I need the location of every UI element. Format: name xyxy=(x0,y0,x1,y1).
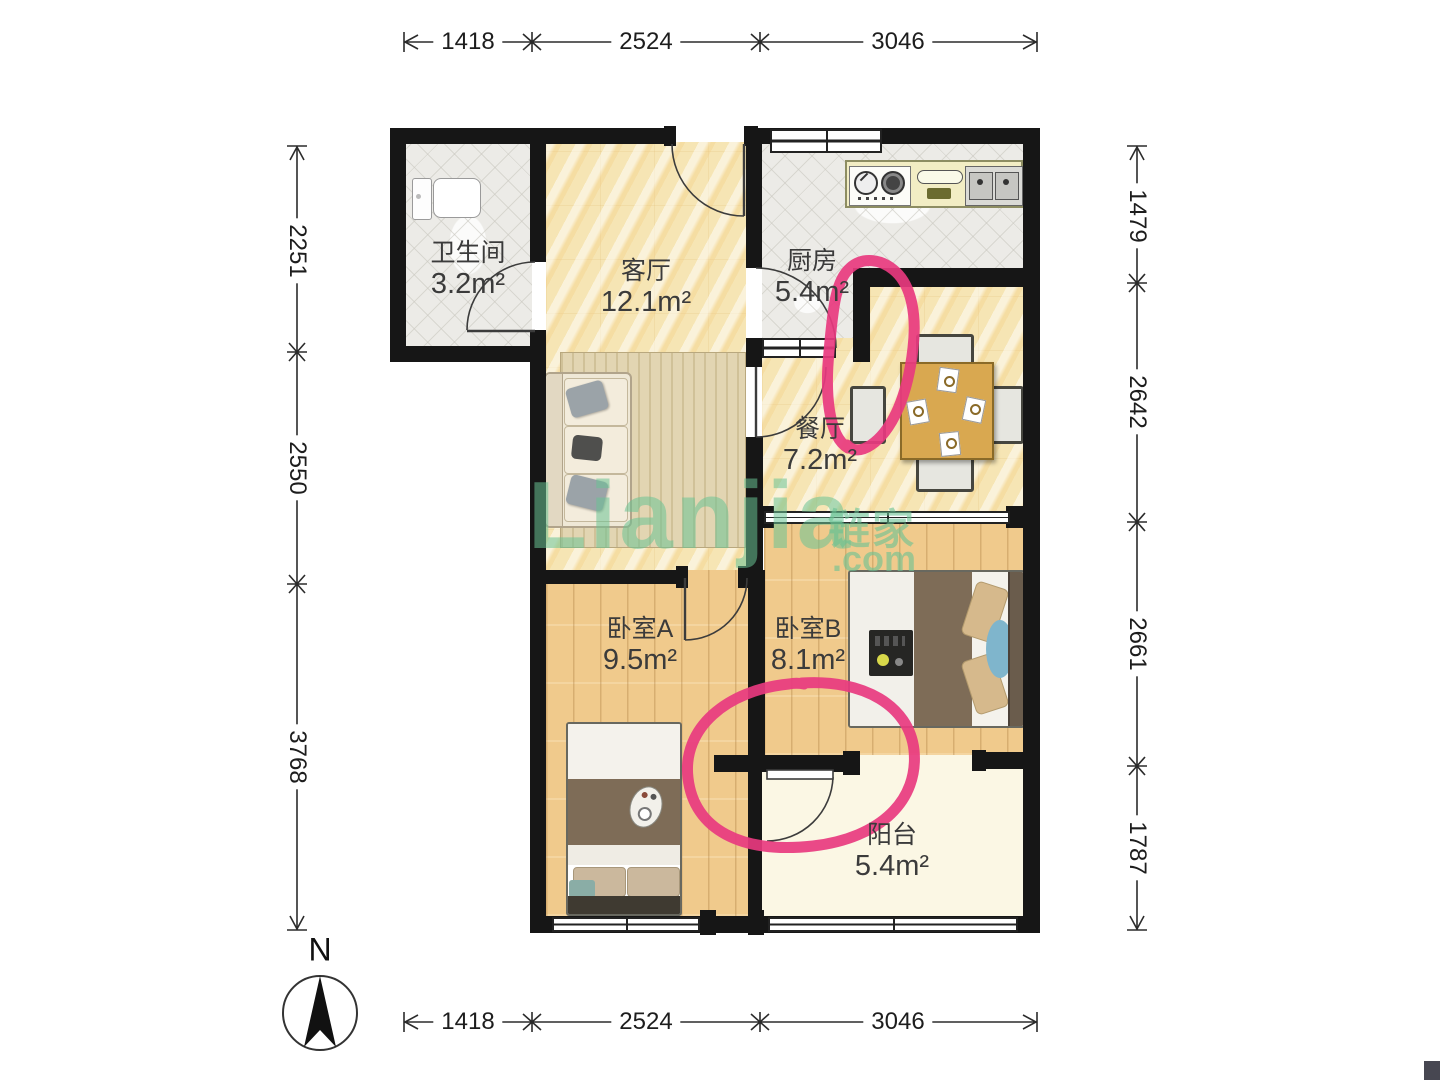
dim-left-2: 2550 xyxy=(283,435,311,500)
annotations xyxy=(687,261,914,848)
dim-right-1: 1479 xyxy=(1123,183,1151,248)
compass xyxy=(283,976,357,1050)
room-label-living: 客厅12.1m² xyxy=(601,257,691,319)
room-label-kitchen: 厨房5.4m² xyxy=(775,247,849,309)
room-label-bedroom-a: 卧室A9.5m² xyxy=(603,615,677,677)
dim-top-2: 2524 xyxy=(611,28,680,56)
corner-mark xyxy=(1424,1061,1440,1080)
dim-left-1: 2251 xyxy=(283,218,311,283)
room-label-bedroom-b: 卧室B8.1m² xyxy=(771,615,845,677)
room-label-bathroom: 卫生间3.2m² xyxy=(430,239,505,301)
dim-bottom-1: 1418 xyxy=(433,1008,502,1036)
dim-bottom-3: 3046 xyxy=(863,1008,932,1036)
dim-top-3: 3046 xyxy=(863,28,932,56)
dim-right-3: 2661 xyxy=(1123,611,1151,676)
room-label-dining: 餐厅7.2m² xyxy=(783,415,857,477)
dim-right-4: 1787 xyxy=(1123,815,1151,880)
dim-top-1: 1418 xyxy=(433,28,502,56)
plan-linework xyxy=(0,0,1440,1080)
dim-left-3: 3768 xyxy=(283,724,311,789)
room-label-balcony: 阳台5.4m² xyxy=(855,821,929,883)
dim-right-2: 2642 xyxy=(1123,369,1151,434)
floor-plan-canvas: 卫生间3.2m² 客厅12.1m² 厨房5.4m² 餐厅7.2m² 卧室A9.5… xyxy=(0,0,1440,1080)
compass-north-label: N xyxy=(308,932,331,969)
dim-bottom-2: 2524 xyxy=(611,1008,680,1036)
dimension-lines xyxy=(287,32,1147,1032)
